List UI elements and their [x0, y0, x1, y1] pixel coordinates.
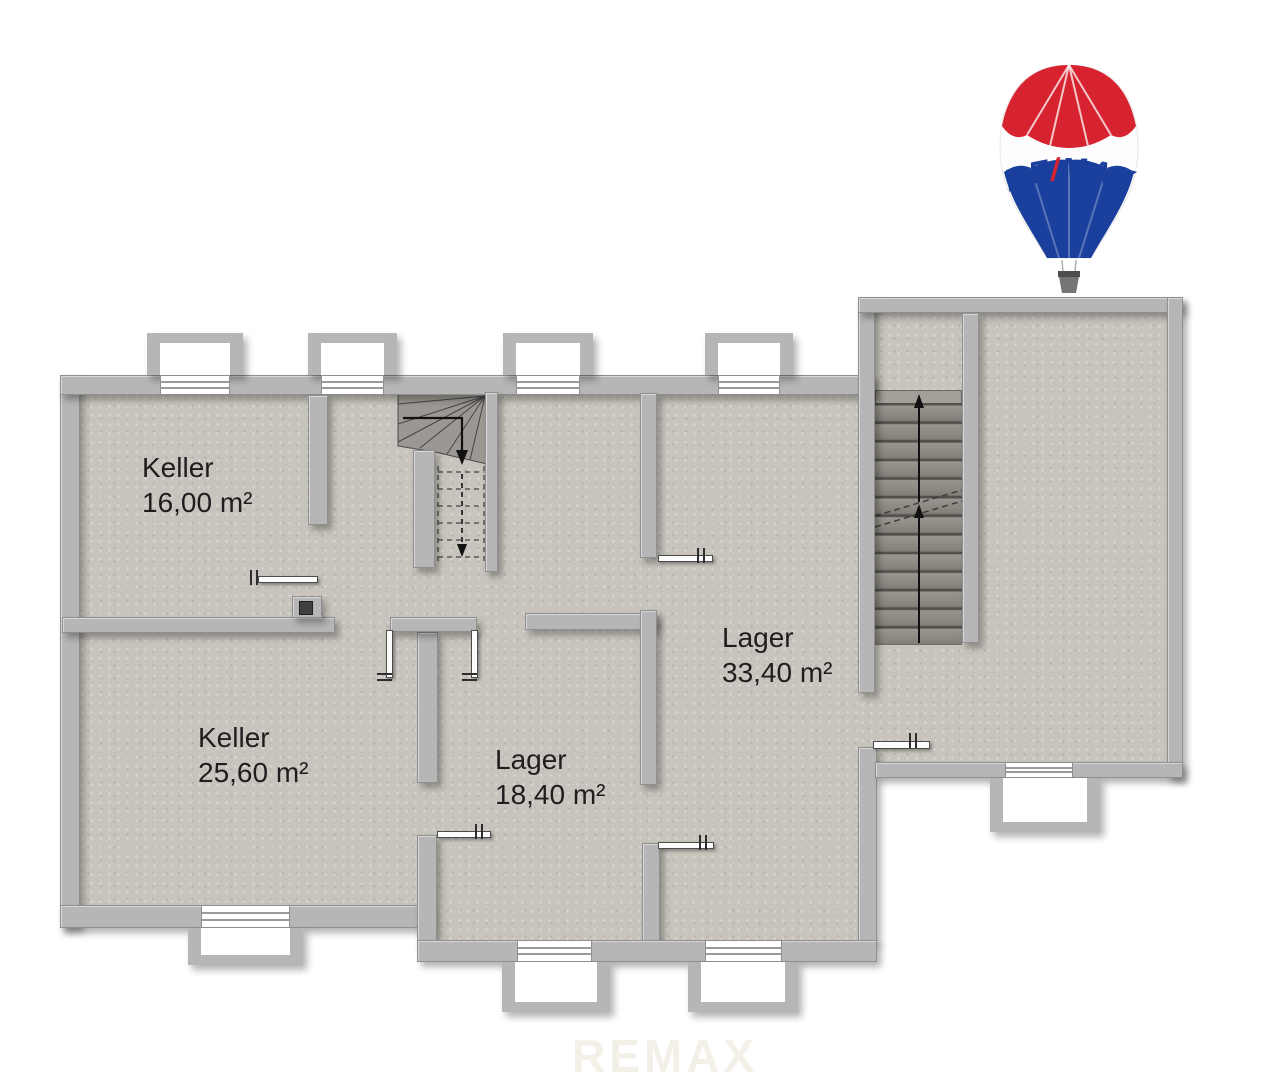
remax-balloon-logo: RE/MAX	[975, 52, 1165, 302]
balloon-basket	[1058, 260, 1080, 293]
room-name: Lager	[722, 620, 833, 655]
room-area: 25,60 m²	[198, 755, 309, 790]
room-label-keller-25: Keller 25,60 m²	[198, 720, 309, 790]
balloon-red-cap	[1002, 65, 1136, 148]
door-hinge	[377, 670, 392, 683]
window	[321, 375, 384, 395]
door-leaf	[258, 576, 318, 583]
room-area: 18,40 m²	[495, 777, 606, 812]
floorplan-canvas: Keller 16,00 m² Keller 25,60 m² Lager 18…	[0, 0, 1285, 1080]
door-hinge	[694, 548, 707, 563]
door-hinge	[462, 670, 477, 683]
wall-corner-horizontal	[525, 613, 657, 630]
basement-window-well	[147, 333, 243, 375]
chimney-flue	[299, 601, 313, 615]
wall-t-stem	[417, 632, 438, 783]
door-hinge	[906, 733, 919, 748]
stair-up-arrow	[914, 394, 924, 643]
wall-stairwell-right	[962, 313, 979, 643]
wall-t-horizontal	[390, 617, 477, 632]
basement-window-well	[308, 333, 397, 375]
window	[1005, 762, 1073, 778]
room-area: 33,40 m²	[722, 655, 833, 690]
basement-window-well	[688, 962, 798, 1012]
wall-corner-vertical	[640, 610, 657, 785]
wall-wing-left-upper	[858, 297, 875, 693]
room-label-lager-33: Lager 33,40 m²	[722, 620, 833, 690]
basement-window-well	[705, 333, 793, 375]
wall-mid-stair-left	[413, 450, 435, 568]
window	[516, 375, 580, 395]
window	[705, 940, 782, 962]
wall-wing-right	[1167, 297, 1183, 778]
door-leaf	[873, 741, 930, 749]
basement-window-well	[990, 778, 1100, 832]
basement-window-well	[188, 928, 303, 965]
staircase-annotations	[875, 390, 962, 645]
wall-lager18-right-lower	[642, 843, 660, 942]
door-hinge	[472, 824, 485, 839]
remax-watermark: REMAX	[572, 1033, 758, 1079]
window	[160, 375, 230, 395]
wall-keller16-right	[308, 395, 328, 525]
window	[201, 905, 290, 928]
door-hinge	[247, 570, 260, 585]
room-label-keller-16: Keller 16,00 m²	[142, 450, 253, 520]
wall-keller16-bottom	[62, 617, 335, 633]
room-name: Lager	[495, 742, 606, 777]
winder-treads	[398, 393, 487, 464]
room-name: Keller	[142, 450, 253, 485]
window	[718, 375, 780, 395]
wall-middle-left-lower	[417, 835, 437, 942]
basement-window-well	[502, 962, 610, 1012]
room-name: Keller	[198, 720, 309, 755]
wall-exterior-bottom-middle	[417, 940, 877, 962]
wall-lager33-left-upper	[640, 393, 657, 558]
door-hinge	[696, 835, 709, 850]
wall-exterior-left	[60, 375, 80, 928]
basement-window-well	[503, 333, 593, 375]
wall-mid-stair-right	[485, 392, 498, 572]
window	[517, 940, 592, 962]
room-label-lager-18: Lager 18,40 m²	[495, 742, 606, 812]
room-area: 16,00 m²	[142, 485, 253, 520]
